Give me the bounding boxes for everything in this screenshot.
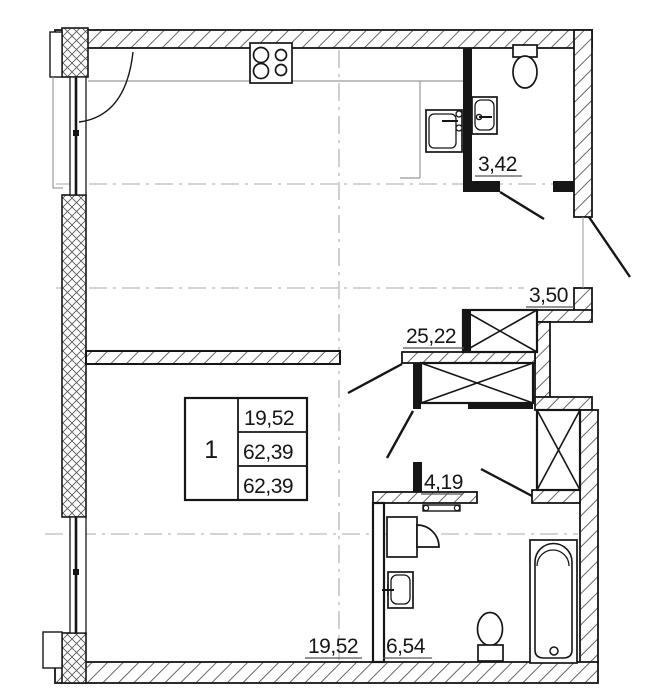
floor-plan-drawing: 3,42 3,50 25,22 4,19 6,54 19,52 1 19,52 … bbox=[0, 0, 647, 700]
left-wall-top-block bbox=[62, 28, 88, 77]
bathtub bbox=[530, 540, 577, 663]
door-leaf-bathroom-top bbox=[500, 192, 544, 219]
door-leaf-entrance bbox=[589, 217, 630, 277]
balcony-edge-line bbox=[53, 77, 63, 188]
area-label-inner-hall: 4,19 bbox=[424, 471, 463, 494]
area-label-bathroom-bottom: 6,54 bbox=[386, 635, 426, 658]
wall-right-upper bbox=[574, 30, 592, 217]
area-label-kitchen-living: 25,22 bbox=[406, 325, 456, 348]
table-value-total: 62,39 bbox=[243, 441, 293, 464]
wall-room-divider bbox=[86, 351, 340, 364]
door-leaf-bathroom-bottom bbox=[481, 469, 532, 496]
wall-top bbox=[55, 30, 592, 48]
wall-right-lower bbox=[580, 410, 598, 663]
window-top bbox=[70, 77, 86, 195]
balcony-stubs bbox=[43, 32, 63, 668]
ventilation-shaft-right bbox=[537, 410, 580, 490]
toilet-bottom bbox=[478, 613, 504, 662]
door-leaf-hall bbox=[348, 364, 402, 393]
kitchen-counter-lines bbox=[88, 81, 465, 178]
ventilation-shaft-upper bbox=[463, 310, 537, 352]
left-wall-main bbox=[62, 195, 86, 517]
window-bottom bbox=[70, 517, 86, 633]
area-label-bathroom-top: 3,42 bbox=[478, 153, 517, 176]
door-leaf-room bbox=[387, 411, 413, 458]
left-wall-bottom-block bbox=[62, 633, 86, 683]
wall-bath-top-bottom bbox=[463, 181, 500, 192]
wall-jog-bottom bbox=[535, 397, 592, 410]
area-label-living-room: 19,52 bbox=[308, 635, 358, 658]
wall-bath-top-stub bbox=[553, 181, 574, 192]
balcony-stub-top bbox=[50, 32, 62, 77]
wall-bath-bottom-left bbox=[373, 503, 384, 662]
basin-bottom bbox=[382, 572, 413, 608]
area-label-entry-hall: 3,50 bbox=[529, 284, 568, 307]
stove bbox=[250, 43, 292, 83]
kitchen-sink bbox=[426, 110, 462, 152]
washing-machine bbox=[387, 517, 439, 557]
balcony-stub-bottom bbox=[43, 632, 62, 668]
wall-right-entry bbox=[574, 288, 592, 312]
ventilation-shaft-lower bbox=[421, 363, 533, 403]
table-value-total-balcony: 62,39 bbox=[243, 475, 293, 498]
area-table: 1 19,52 62,39 62,39 bbox=[185, 398, 307, 500]
wall-bottom bbox=[55, 662, 598, 683]
table-value-living: 19,52 bbox=[244, 407, 294, 430]
wall-shaft-lower-left bbox=[413, 363, 421, 409]
interior-walls bbox=[86, 48, 580, 662]
coat-rack bbox=[423, 505, 460, 511]
toilet-top bbox=[513, 45, 537, 88]
wall-corridor-strip bbox=[402, 352, 535, 363]
bathroom-top-sink bbox=[472, 97, 497, 134]
wall-bath-top-left bbox=[463, 48, 472, 187]
wall-jog-top bbox=[535, 310, 592, 322]
floor-plan: 3,42 3,50 25,22 4,19 6,54 19,52 1 19,52 … bbox=[0, 0, 647, 700]
room-number: 1 bbox=[204, 436, 217, 464]
wall-shaft-right-bottom bbox=[532, 490, 580, 503]
